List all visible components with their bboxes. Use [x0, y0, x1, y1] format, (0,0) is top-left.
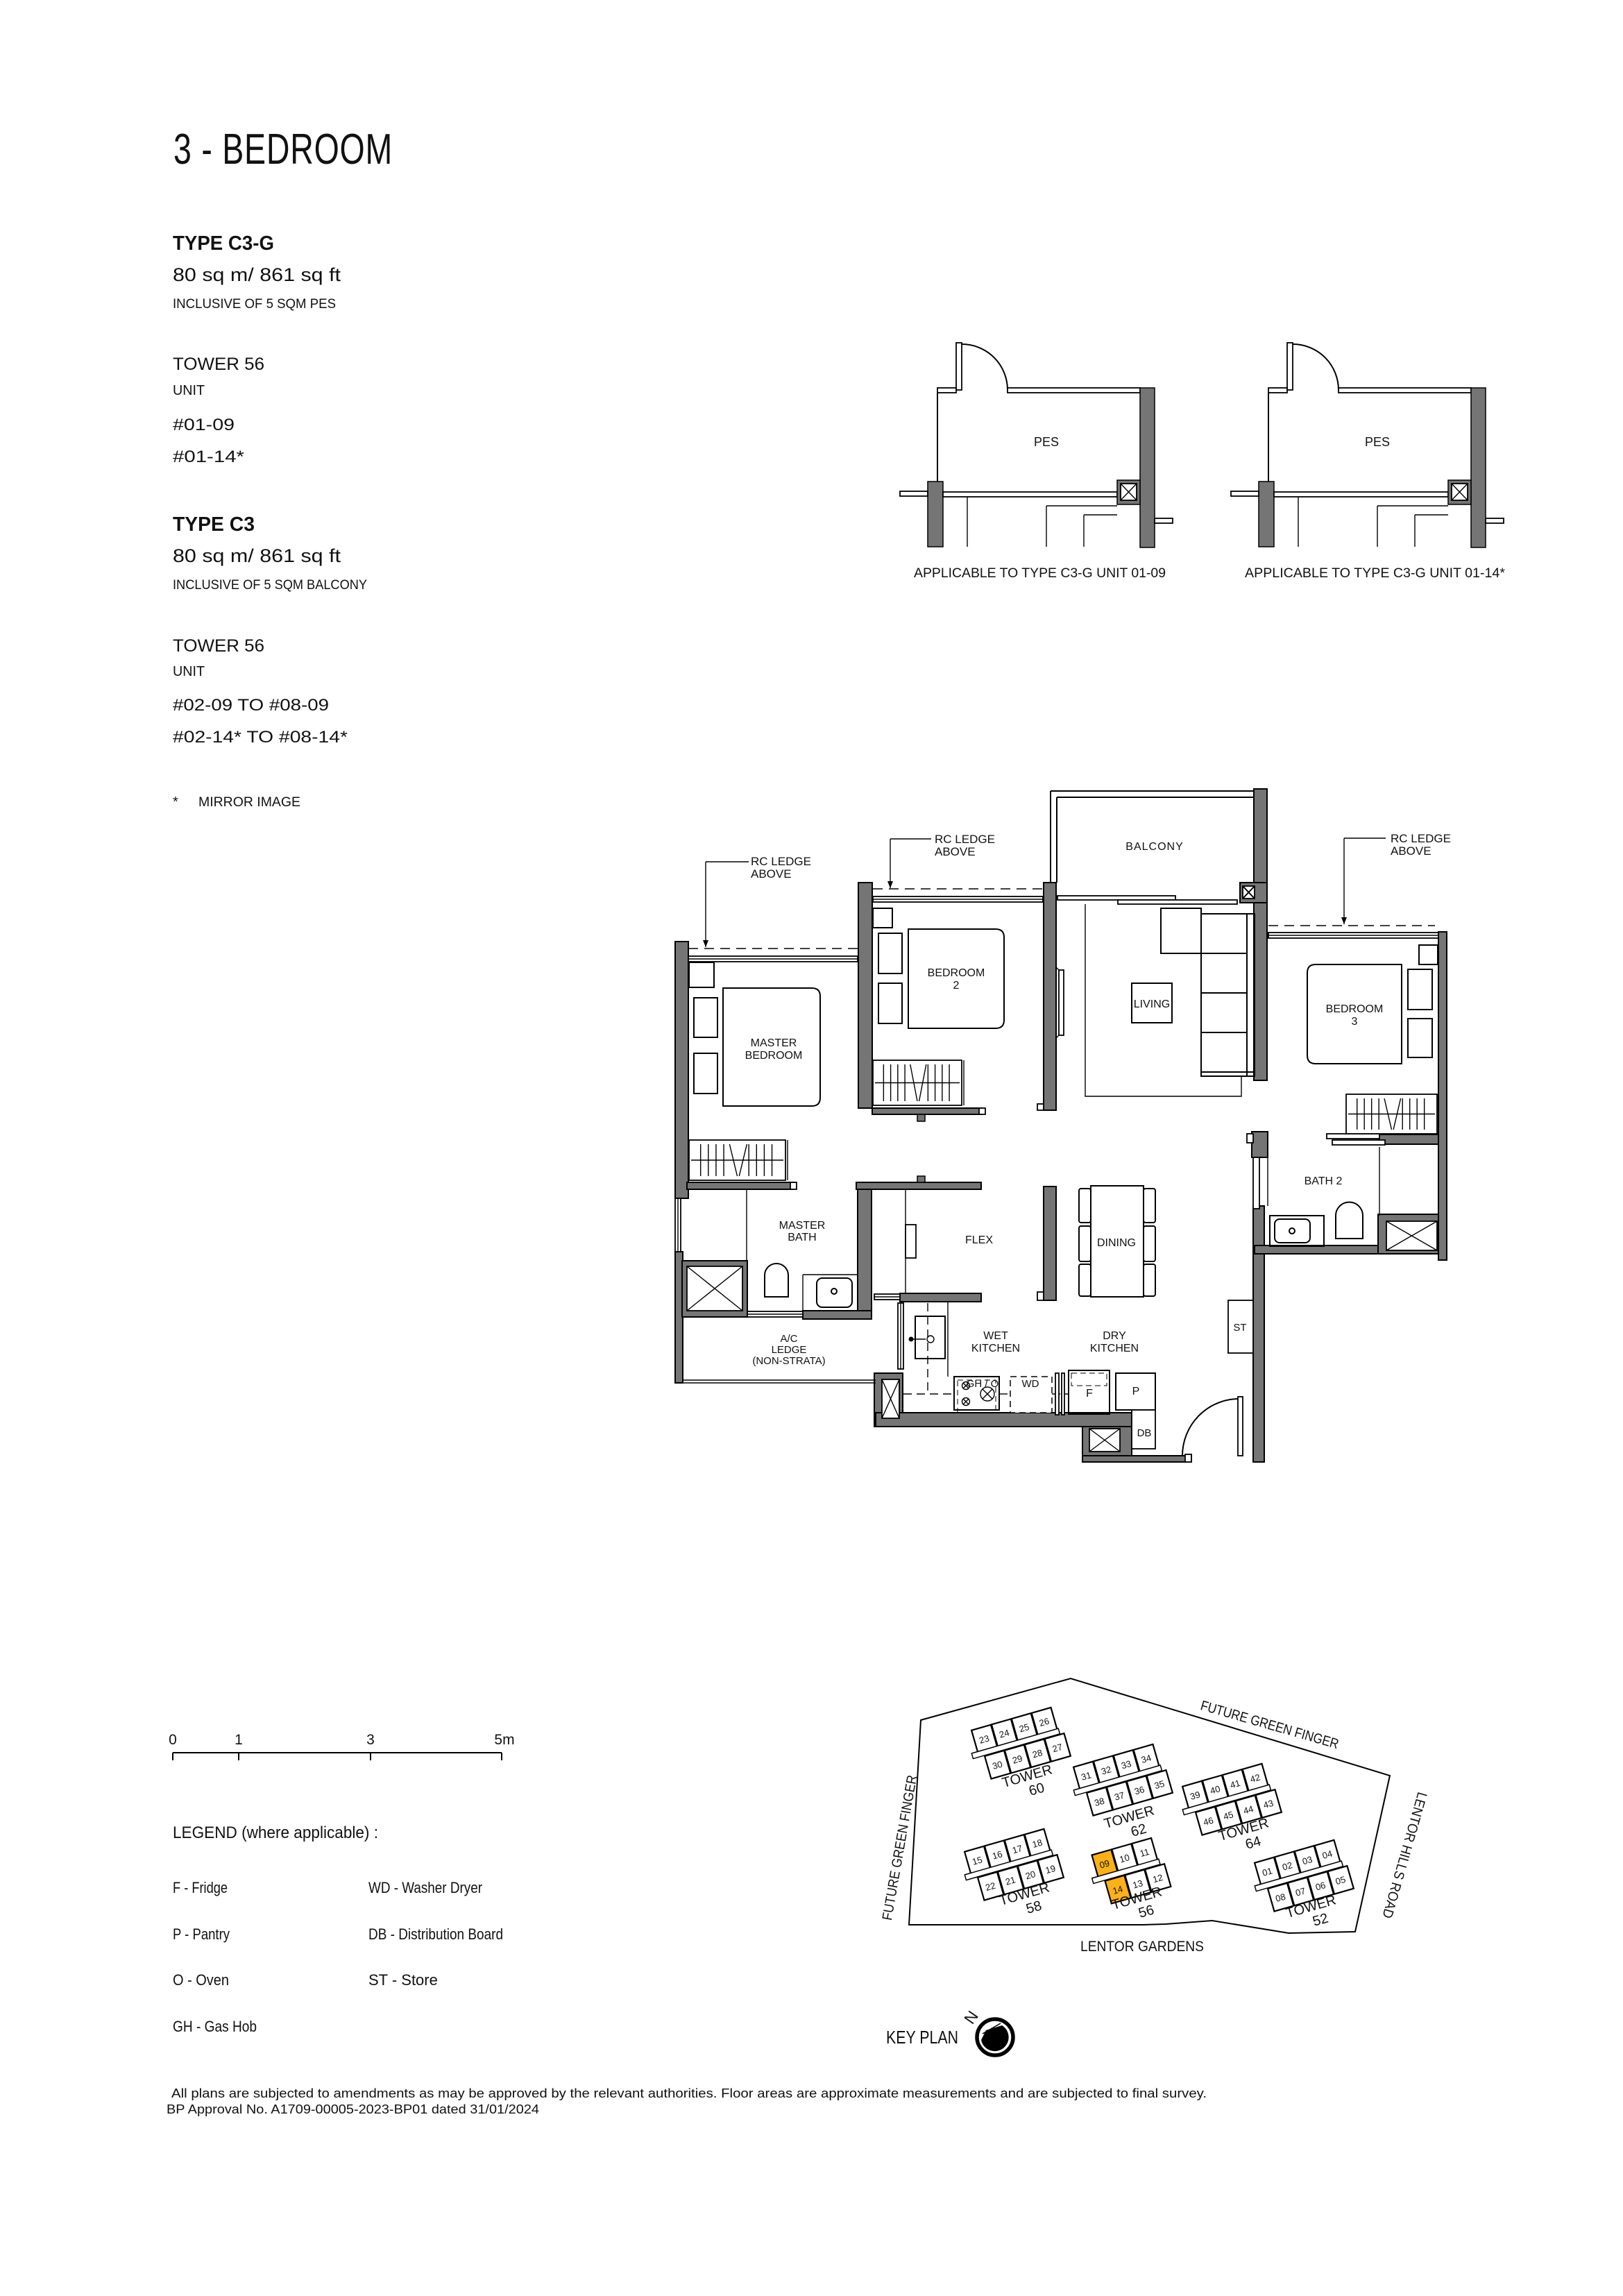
- svg-text:ST - Store: ST - Store: [368, 1971, 438, 1989]
- svg-text:BATH 2: BATH 2: [1305, 1175, 1343, 1187]
- svg-text:N: N: [960, 2007, 982, 2027]
- svg-text:O - Oven: O - Oven: [173, 1971, 229, 1989]
- svg-text:FLEX: FLEX: [965, 1234, 993, 1246]
- svg-text:APPLICABLE TO TYPE C3-G UNIT 0: APPLICABLE TO TYPE C3-G UNIT 01-14*: [1245, 566, 1506, 581]
- svg-text:DB: DB: [1137, 1427, 1152, 1439]
- svg-text:ST: ST: [1233, 1322, 1246, 1334]
- svg-text:RC LEDGE: RC LEDGE: [935, 833, 995, 846]
- svg-text:TYPE C3: TYPE C3: [173, 513, 255, 536]
- svg-text:FUTURE GREEN FINGER: FUTURE GREEN FINGER: [880, 1774, 920, 1922]
- svg-text:WET: WET: [983, 1330, 1008, 1342]
- svg-text:KITCHEN: KITCHEN: [971, 1343, 1020, 1354]
- svg-text:MASTER: MASTER: [779, 1220, 826, 1232]
- svg-text:60: 60: [1027, 1780, 1046, 1799]
- svg-text:LEGEND (where applicable) :: LEGEND (where applicable) :: [173, 1823, 378, 1842]
- svg-text:LENTOR GARDENS: LENTOR GARDENS: [1080, 1939, 1204, 1955]
- svg-text:FUTURE GREEN FINGER: FUTURE GREEN FINGER: [1199, 1698, 1341, 1752]
- svg-text:(NON-STRATA): (NON-STRATA): [752, 1355, 825, 1367]
- svg-text:3 - BEDROOM: 3 - BEDROOM: [173, 126, 393, 173]
- svg-text:P - Pantry: P - Pantry: [173, 1925, 230, 1943]
- svg-text:RC LEDGE: RC LEDGE: [1391, 832, 1451, 845]
- svg-text:WD: WD: [1022, 1378, 1039, 1390]
- svg-text:1: 1: [235, 1732, 243, 1748]
- svg-text:3: 3: [366, 1732, 375, 1748]
- svg-text:BEDROOM: BEDROOM: [1326, 1003, 1384, 1015]
- svg-text:0: 0: [169, 1732, 177, 1748]
- svg-text:#02-14* TO #08-14*: #02-14* TO #08-14*: [173, 728, 348, 747]
- svg-text:GH - Gas Hob: GH - Gas Hob: [173, 2018, 257, 2035]
- svg-text:#02-09 TO #08-09: #02-09 TO #08-09: [173, 696, 329, 715]
- svg-text:5m: 5m: [494, 1732, 514, 1748]
- svg-text:ABOVE: ABOVE: [1391, 844, 1431, 858]
- svg-text:80 sq m/ 861 sq ft: 80 sq m/ 861 sq ft: [173, 264, 341, 285]
- svg-text:ABOVE: ABOVE: [935, 845, 976, 858]
- svg-text:BEDROOM: BEDROOM: [745, 1050, 803, 1062]
- svg-text:MASTER: MASTER: [751, 1037, 797, 1049]
- svg-text:LEDGE: LEDGE: [772, 1344, 807, 1356]
- svg-text:WD - Washer Dryer: WD - Washer Dryer: [368, 1879, 482, 1896]
- svg-text:DRY: DRY: [1103, 1330, 1126, 1342]
- svg-text:2: 2: [953, 980, 960, 992]
- svg-text:LIVING: LIVING: [1134, 998, 1170, 1010]
- svg-text:P: P: [1132, 1386, 1140, 1397]
- svg-text:TYPE C3-G: TYPE C3-G: [173, 232, 274, 255]
- svg-text:3: 3: [1352, 1016, 1358, 1028]
- svg-text:BP Approval No. A1709-00005-20: BP Approval No. A1709-00005-2023-BP01 da…: [167, 2102, 539, 2116]
- svg-text:TOWER 56: TOWER 56: [173, 636, 264, 656]
- svg-text:APPLICABLE TO TYPE C3-G UNIT 0: APPLICABLE TO TYPE C3-G UNIT 01-09: [914, 566, 1166, 581]
- svg-text:RC LEDGE: RC LEDGE: [751, 855, 811, 868]
- svg-text:A/C: A/C: [780, 1333, 797, 1345]
- svg-text:GH / O: GH / O: [967, 1378, 999, 1390]
- svg-text:#01-14*: #01-14*: [173, 448, 244, 466]
- svg-text:UNIT: UNIT: [173, 383, 205, 398]
- svg-text:MIRROR IMAGE: MIRROR IMAGE: [198, 795, 300, 810]
- svg-text:PES: PES: [1034, 435, 1059, 449]
- svg-text:DB - Distribution Board: DB - Distribution Board: [368, 1925, 503, 1943]
- svg-text:DINING: DINING: [1097, 1237, 1136, 1249]
- svg-text:58: 58: [1024, 1898, 1043, 1917]
- svg-text:F: F: [1086, 1388, 1093, 1400]
- svg-text:All plans are subjected to ame: All plans are subjected to amendments as…: [171, 2086, 1207, 2100]
- svg-text:*: *: [173, 794, 178, 810]
- svg-text:52: 52: [1311, 1911, 1329, 1930]
- svg-text:56: 56: [1137, 1903, 1155, 1921]
- svg-text:62: 62: [1129, 1821, 1148, 1840]
- svg-text:UNIT: UNIT: [173, 664, 205, 679]
- svg-text:KEY PLAN: KEY PLAN: [886, 2027, 958, 2048]
- svg-text:LENTOR HILLS ROAD: LENTOR HILLS ROAD: [1379, 1790, 1429, 1920]
- svg-text:F - Fridge: F - Fridge: [173, 1879, 228, 1896]
- svg-text:ABOVE: ABOVE: [751, 867, 792, 881]
- svg-text:BEDROOM: BEDROOM: [928, 967, 985, 979]
- svg-text:80 sq m/ 861 sq ft: 80 sq m/ 861 sq ft: [173, 545, 341, 566]
- svg-text:INCLUSIVE OF 5 SQM PES: INCLUSIVE OF 5 SQM PES: [173, 297, 336, 312]
- svg-text:TOWER 56: TOWER 56: [173, 355, 264, 374]
- svg-text:64: 64: [1243, 1834, 1262, 1853]
- svg-text:KITCHEN: KITCHEN: [1090, 1343, 1139, 1354]
- svg-text:BALCONY: BALCONY: [1125, 841, 1183, 853]
- svg-text:#01-09: #01-09: [173, 416, 235, 434]
- svg-text:INCLUSIVE OF 5 SQM BALCONY: INCLUSIVE OF 5 SQM BALCONY: [173, 578, 367, 593]
- svg-text:BATH: BATH: [788, 1232, 816, 1243]
